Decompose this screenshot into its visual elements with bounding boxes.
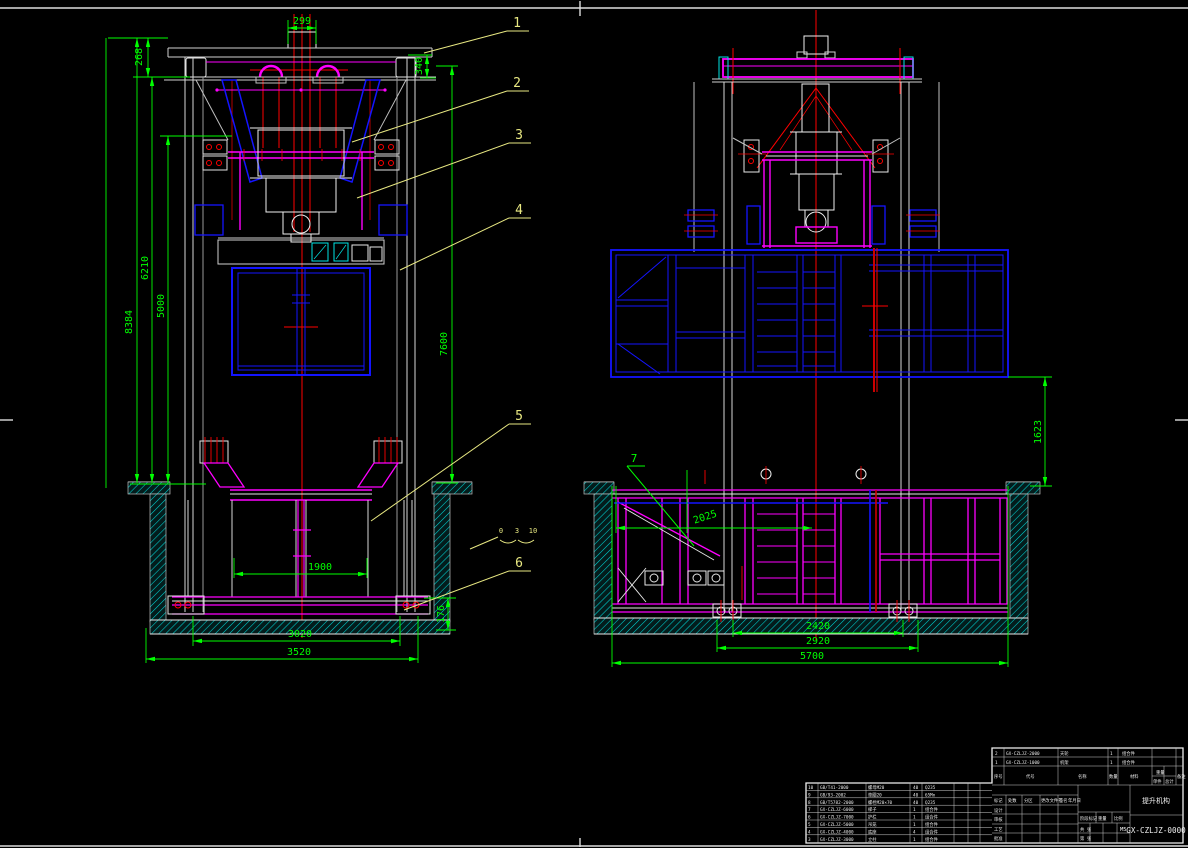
svg-text:立柱: 立柱 (868, 836, 877, 843)
svg-text:GB/T5782-2000: GB/T5782-2000 (820, 800, 854, 806)
svg-text:1: 1 (913, 815, 916, 821)
svg-text:1: 1 (1110, 751, 1113, 757)
svg-text:GX-CZLJZ-6000: GX-CZLJZ-6000 (820, 807, 854, 813)
svg-text:4: 4 (808, 829, 811, 835)
title-block: 10GB/T41-2000螺母M2040Q235 9GB/93-2002垫圈20… (806, 748, 1186, 843)
svg-text:组合件: 组合件 (925, 821, 939, 828)
svg-text:65Mn: 65Mn (925, 792, 936, 798)
svg-text:天轮: 天轮 (1060, 750, 1069, 757)
svg-text:GX-CZLJZ-7000: GX-CZLJZ-7000 (820, 815, 854, 821)
svg-text:40: 40 (913, 792, 919, 798)
dim-299: 299 (293, 16, 311, 27)
balloon-2: 2 (513, 76, 521, 91)
front-view (128, 14, 472, 638)
svg-text:签名: 签名 (1059, 797, 1068, 804)
balloon-6: 6 (515, 556, 523, 571)
dim-2920: 2920 (806, 636, 830, 647)
svg-text:数量: 数量 (1109, 773, 1118, 780)
balloon-3: 3 (515, 128, 523, 143)
svg-text:1: 1 (1110, 760, 1113, 766)
svg-text:1: 1 (913, 807, 916, 813)
svg-text:比例: 比例 (1114, 815, 1123, 822)
guide-funnels (200, 437, 402, 487)
svg-text:梯子: 梯子 (868, 806, 877, 813)
svg-text:GX-CZLJZ-3000: GX-CZLJZ-3000 (820, 837, 854, 843)
crossbeam (228, 149, 374, 230)
weld-note-0: 0 (499, 527, 503, 535)
svg-text:重量: 重量 (1156, 769, 1165, 776)
svg-text:吊笼: 吊笼 (868, 821, 877, 828)
svg-text:组合件: 组合件 (925, 806, 939, 813)
lifting-lugs (705, 466, 866, 484)
svg-text:机架: 机架 (1060, 759, 1069, 766)
svg-text:Q235: Q235 (925, 785, 936, 791)
dim-2025: 2025 (692, 509, 718, 527)
svg-text:设计: 设计 (994, 807, 1003, 814)
svg-text:6: 6 (808, 815, 811, 821)
weld-note: 0 3 10 (470, 527, 537, 549)
svg-text:重量: 重量 (1098, 815, 1107, 822)
svg-text:40: 40 (913, 785, 919, 791)
svg-text:1: 1 (913, 822, 916, 828)
pit-frame (612, 490, 1008, 622)
svg-text:GB/93-2002: GB/93-2002 (820, 792, 846, 798)
svg-text:批准: 批准 (994, 835, 1003, 842)
svg-text:序号: 序号 (994, 773, 1003, 780)
dim-176: 176 (436, 605, 447, 623)
dim-3520: 3520 (287, 647, 311, 658)
sheet-border (0, 1, 1188, 847)
dim-3020: 3020 (288, 629, 312, 640)
svg-text:螺母M20: 螺母M20 (868, 784, 885, 791)
balloon-7: 7 (631, 452, 638, 465)
svg-text:GX-CZLJZ-2000: GX-CZLJZ-2000 (1006, 751, 1040, 757)
balloon-5: 5 (515, 409, 523, 424)
dimension-texts: 299 268 340 8384 6210 5000 7600 1900 176… (124, 16, 1044, 662)
dim-5700: 5700 (800, 651, 824, 662)
svg-text:1: 1 (995, 760, 998, 766)
dim-268: 268 (134, 48, 145, 66)
svg-text:8: 8 (808, 800, 811, 806)
pit (128, 482, 472, 634)
svg-text:GB/T41-2000: GB/T41-2000 (820, 785, 849, 791)
pit-side (584, 482, 1040, 634)
dim-2420: 2420 (806, 621, 830, 632)
svg-text:审核: 审核 (994, 816, 1003, 823)
svg-text:备注: 备注 (1177, 773, 1186, 780)
svg-text:GX-CZLJZ-1000: GX-CZLJZ-1000 (1006, 760, 1040, 766)
dim-1623: 1623 (1033, 420, 1044, 444)
svg-text:工艺: 工艺 (994, 827, 1003, 833)
dim-340: 340 (414, 57, 425, 75)
drawing-number: GX-CZLJZ-0000 (1126, 826, 1186, 835)
svg-text:分区: 分区 (1024, 797, 1033, 804)
svg-text:名称: 名称 (1078, 773, 1087, 780)
svg-text:阶段标记: 阶段标记 (1080, 815, 1098, 822)
svg-text:GX-CZLJZ-4000: GX-CZLJZ-4000 (820, 829, 854, 835)
svg-text:材料: 材料 (1130, 773, 1139, 780)
balloon-4: 4 (515, 203, 523, 218)
svg-text:垫圈20: 垫圈20 (868, 791, 882, 798)
dim-8384: 8384 (124, 310, 135, 334)
svg-text:3: 3 (808, 837, 811, 843)
dim-5000: 5000 (156, 294, 167, 318)
svg-text:组合件: 组合件 (925, 828, 939, 835)
dim-6210: 6210 (140, 256, 151, 280)
svg-text:4: 4 (913, 829, 916, 835)
svg-text:底座: 底座 (868, 828, 877, 835)
balloon-1: 1 (513, 16, 521, 31)
cage (232, 268, 370, 375)
svg-text:9: 9 (808, 792, 811, 798)
svg-text:10: 10 (808, 785, 814, 791)
drawing-name: 提升机构 (1142, 796, 1170, 805)
svg-text:7: 7 (808, 807, 811, 813)
svg-text:5: 5 (808, 822, 811, 828)
svg-text:代号: 代号 (1026, 773, 1035, 780)
cad-canvas: 299 268 340 8384 6210 5000 7600 1900 176… (0, 0, 1188, 848)
weld-note-10: 10 (529, 527, 537, 535)
svg-text:40: 40 (913, 800, 919, 806)
svg-text:第 张: 第 张 (1080, 835, 1092, 842)
hoist-machine (250, 128, 352, 242)
balloon-callouts: 1 2 3 4 5 6 7 0 3 10 (352, 16, 694, 610)
svg-text:组合件: 组合件 (1122, 759, 1136, 766)
svg-text:单件: 单件 (1153, 778, 1162, 785)
svg-text:年月日: 年月日 (1068, 797, 1081, 804)
dimensions (106, 20, 1052, 667)
svg-text:处数: 处数 (1008, 797, 1017, 804)
svg-text:组合件: 组合件 (1122, 750, 1136, 757)
svg-text:Q235: Q235 (925, 800, 936, 806)
mid-frame (762, 152, 872, 248)
platform-cage (611, 248, 1008, 392)
svg-text:螺栓M20×70: 螺栓M20×70 (868, 799, 893, 806)
weld-note-3: 3 (515, 527, 519, 535)
svg-text:总计: 总计 (1165, 778, 1174, 785)
dim-1900: 1900 (308, 562, 332, 573)
svg-text:组合件: 组合件 (925, 836, 939, 843)
side-view (584, 10, 1040, 640)
svg-text:1: 1 (913, 837, 916, 843)
svg-text:共 张: 共 张 (1080, 826, 1092, 833)
svg-text:标记: 标记 (994, 797, 1003, 804)
svg-text:GX-CZLJZ-5000: GX-CZLJZ-5000 (820, 822, 854, 828)
svg-text:2: 2 (995, 751, 998, 757)
side-clamps (684, 138, 940, 244)
svg-text:护栏: 护栏 (868, 814, 877, 821)
dim-7600: 7600 (439, 332, 450, 356)
svg-text:组合件: 组合件 (925, 814, 939, 821)
base-frame (168, 490, 430, 614)
